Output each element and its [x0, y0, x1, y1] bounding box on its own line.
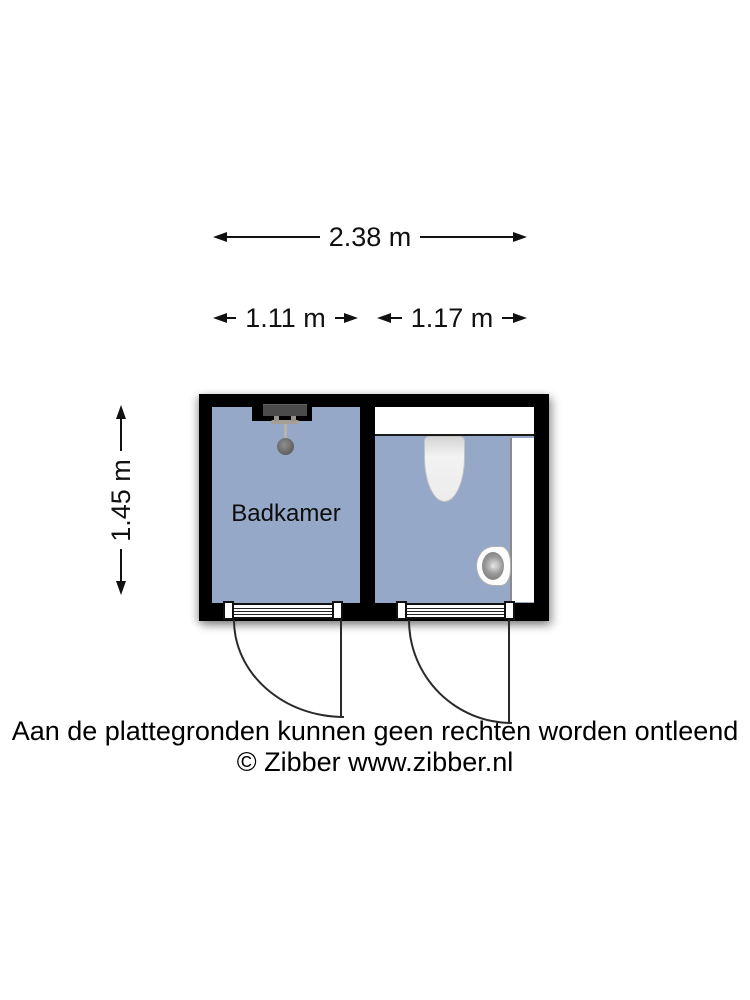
door-post	[504, 601, 515, 620]
door-post	[332, 601, 343, 620]
door-leaf-right	[508, 620, 510, 723]
dimension-label: 1.45 m	[106, 459, 137, 542]
arrow-up-icon	[116, 405, 126, 419]
dimension-label: 1.17 m	[402, 301, 503, 335]
arrow-down-icon	[116, 581, 126, 595]
dimension-line	[335, 317, 344, 319]
arrow-left-icon	[213, 313, 227, 323]
dimension-line	[391, 317, 402, 319]
dimension-line	[120, 549, 122, 581]
door-threshold-right	[398, 603, 515, 619]
door-threshold-left	[225, 603, 343, 619]
door-leaf-left	[340, 620, 342, 717]
door-post	[396, 601, 407, 620]
cistern-shelf	[375, 407, 534, 436]
arrow-right-icon	[513, 313, 527, 323]
disclaimer-text: Aan de plattegronden kunnen geen rechten…	[0, 716, 750, 747]
dimension-line	[502, 317, 513, 319]
dimension-label: 1.11 m	[236, 301, 335, 335]
arrow-left-icon	[213, 232, 227, 242]
sink-drain	[491, 564, 495, 568]
door-swing-arc-right	[408, 620, 512, 724]
copyright-text: © Zibber www.zibber.nl	[0, 747, 750, 778]
dimension-overall-width: 2.38 m	[213, 220, 527, 254]
floorplan-drawing: Badkamer	[199, 394, 549, 621]
shower-hose	[284, 424, 287, 439]
dimension-line	[227, 317, 236, 319]
shower-niche-inset	[263, 404, 307, 416]
door-swing-arc-left	[233, 620, 344, 718]
dimension-left-room-width: 1.11 m	[213, 301, 358, 335]
door-post	[223, 601, 234, 620]
footer: Aan de plattegronden kunnen geen rechten…	[0, 716, 750, 778]
dimension-label-wrap: 1.45 m	[80, 451, 163, 549]
floorplan-page: 2.38 m 1.11 m 1.17 m 1.45 m	[0, 0, 750, 1000]
sink-icon	[476, 546, 511, 586]
shower-head-icon	[277, 438, 294, 455]
dimension-overall-depth: 1.45 m	[104, 405, 138, 595]
dimension-label: 2.38 m	[320, 220, 421, 254]
sink-counter	[510, 438, 534, 602]
arrow-right-icon	[344, 313, 358, 323]
dimension-line	[227, 236, 320, 238]
arrow-left-icon	[377, 313, 391, 323]
dimension-line	[120, 419, 122, 451]
arrow-right-icon	[513, 232, 527, 242]
dimension-right-room-width: 1.17 m	[377, 301, 527, 335]
dimension-line	[420, 236, 513, 238]
room-label-badkamer: Badkamer	[212, 500, 360, 528]
